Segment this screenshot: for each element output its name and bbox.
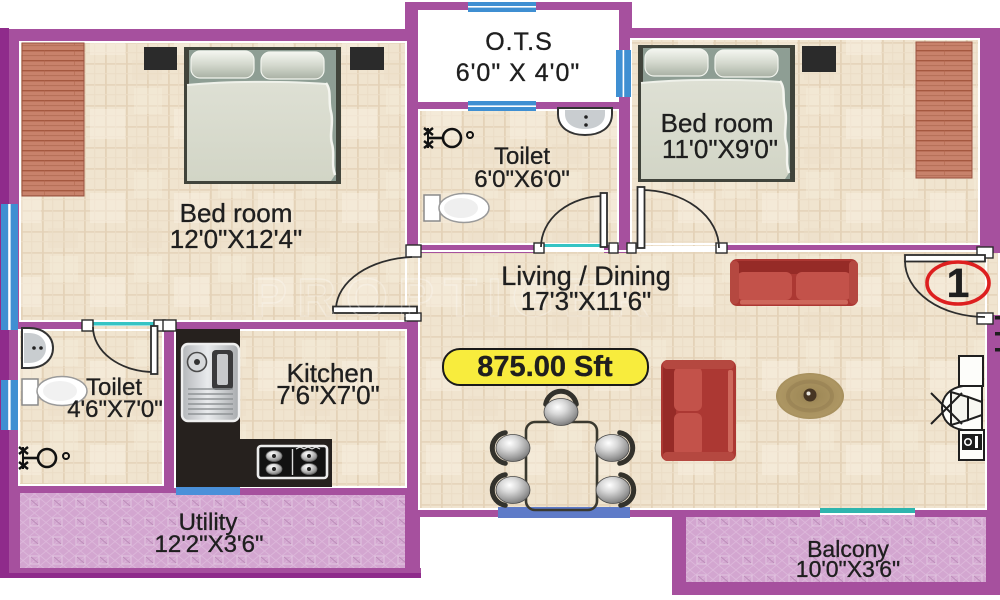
svg-text:7'6"X7'0": 7'6"X7'0": [276, 380, 380, 410]
svg-text:1: 1: [947, 260, 970, 306]
svg-text:4'6"X7'0": 4'6"X7'0": [67, 396, 163, 423]
svg-text:10'0"X3'6": 10'0"X3'6": [796, 556, 900, 582]
svg-text:12'0"X12'4": 12'0"X12'4": [170, 224, 303, 254]
svg-text:6'0" X 4'0": 6'0" X 4'0": [456, 59, 580, 87]
svg-text:O.T.S: O.T.S: [485, 28, 553, 56]
svg-text:875.00 Sft: 875.00 Sft: [477, 351, 613, 383]
svg-text:6'0"X6'0": 6'0"X6'0": [474, 166, 570, 193]
svg-text:12'2"X3'6": 12'2"X3'6": [155, 531, 264, 558]
svg-text:11'0"X9'0": 11'0"X9'0": [662, 134, 778, 164]
svg-text:17'3"X11'6": 17'3"X11'6": [521, 286, 652, 316]
